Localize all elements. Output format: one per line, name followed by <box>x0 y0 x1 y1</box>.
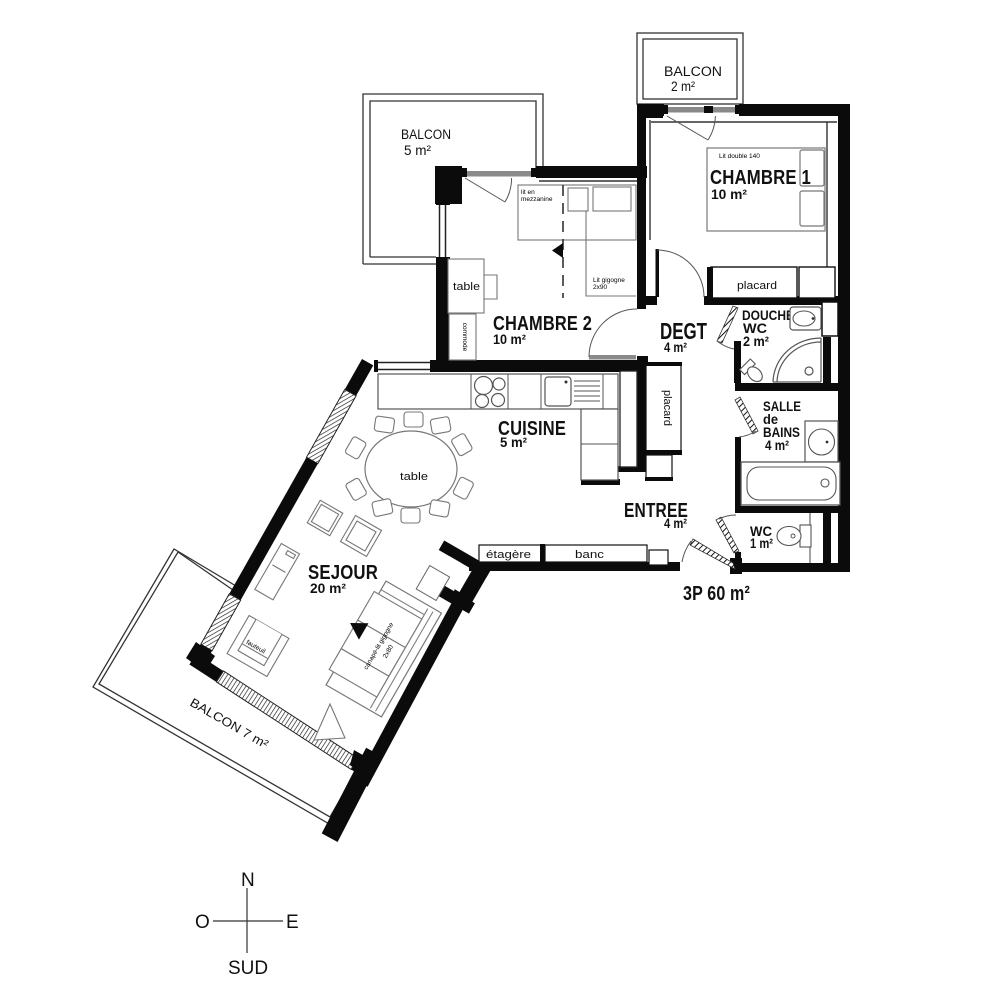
svg-text:banc: banc <box>575 549 605 561</box>
svg-text:10 m²: 10 m² <box>493 332 526 347</box>
svg-text:CHAMBRE 1: CHAMBRE 1 <box>710 167 811 189</box>
svg-text:Lit gigogne: Lit gigogne <box>593 277 625 284</box>
svg-text:lit en: lit en <box>521 189 535 196</box>
svg-text:placard: placard <box>661 390 673 426</box>
svg-text:3P 60 m²: 3P 60 m² <box>683 583 750 605</box>
svg-text:table: table <box>453 281 480 293</box>
svg-text:SUD: SUD <box>228 958 268 979</box>
svg-text:5 m²: 5 m² <box>404 143 432 158</box>
svg-text:Lit double 140: Lit double 140 <box>719 153 760 160</box>
svg-text:4 m²: 4 m² <box>765 438 789 453</box>
svg-text:5 m²: 5 m² <box>500 435 527 450</box>
svg-text:BALCON: BALCON <box>401 127 451 142</box>
svg-text:placard: placard <box>737 280 777 292</box>
svg-text:mezzanine: mezzanine <box>521 196 553 203</box>
svg-text:1 m²: 1 m² <box>750 536 773 551</box>
svg-text:commode: commode <box>461 323 468 352</box>
svg-text:O: O <box>195 912 210 933</box>
svg-text:2 m²: 2 m² <box>671 79 695 94</box>
svg-text:4 m²: 4 m² <box>664 516 687 531</box>
svg-text:BALCON: BALCON <box>664 64 722 79</box>
svg-text:E: E <box>286 912 299 933</box>
svg-text:10 m²: 10 m² <box>711 187 747 202</box>
svg-text:20 m²: 20 m² <box>310 581 346 596</box>
svg-text:2x90: 2x90 <box>593 284 607 291</box>
svg-text:N: N <box>241 870 255 891</box>
svg-text:2 m²: 2 m² <box>743 334 769 349</box>
svg-text:étagère: étagère <box>486 549 531 561</box>
svg-text:4 m²: 4 m² <box>664 340 687 355</box>
svg-text:table: table <box>400 471 428 483</box>
